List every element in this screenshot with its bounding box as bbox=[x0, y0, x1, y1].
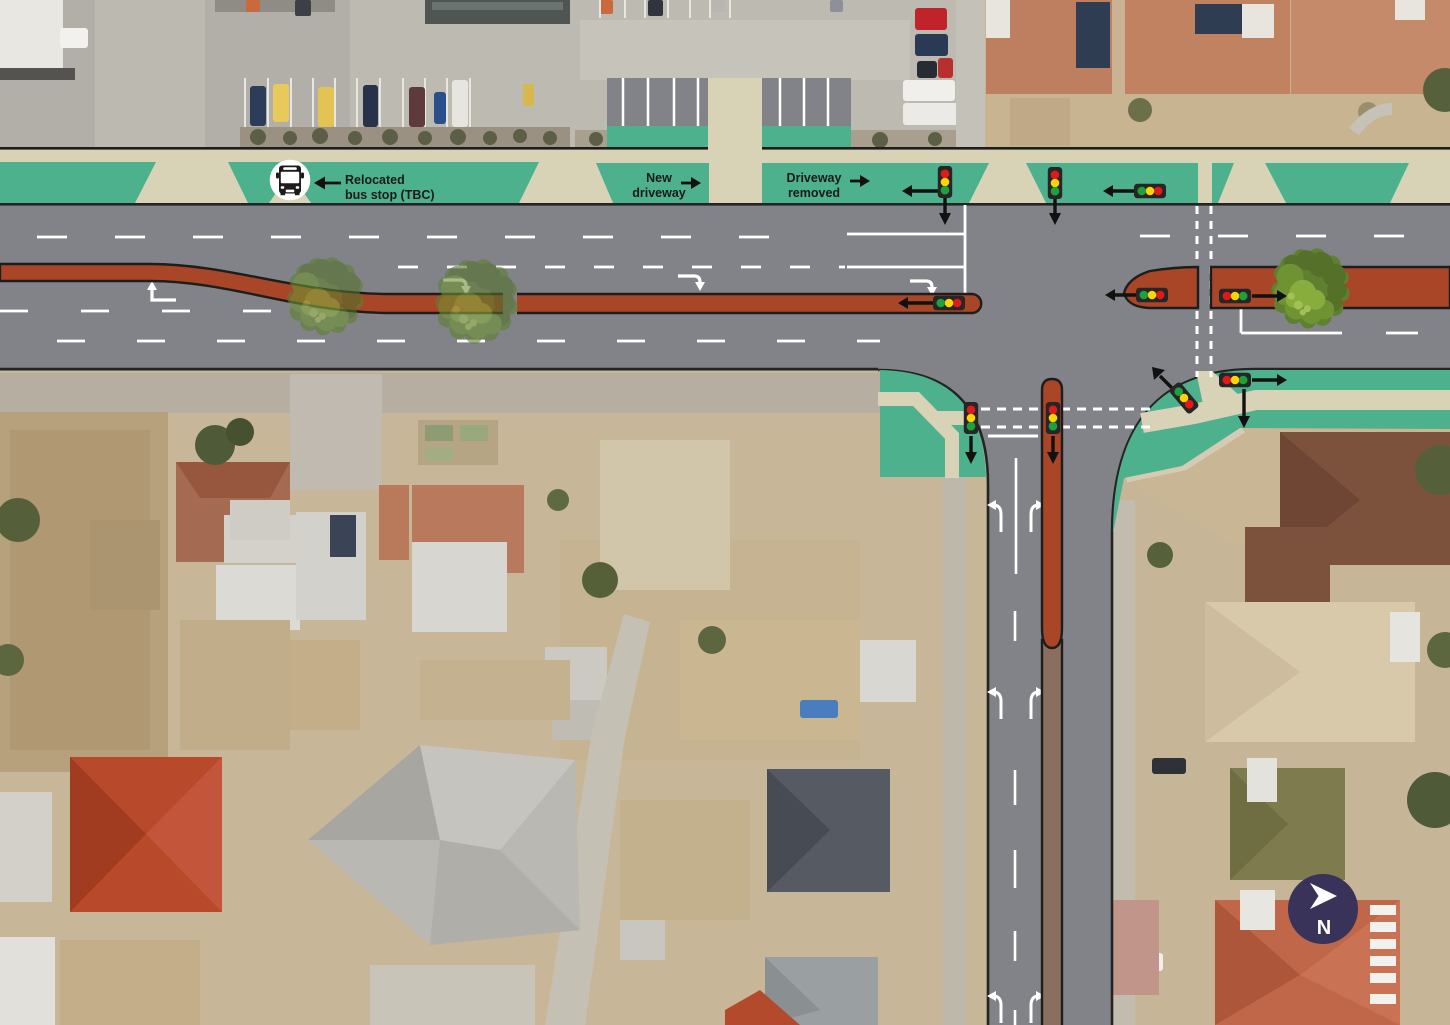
svg-text:driveway: driveway bbox=[632, 186, 686, 200]
svg-text:bus stop (TBC): bus stop (TBC) bbox=[345, 188, 435, 202]
svg-text:Driveway: Driveway bbox=[787, 171, 842, 185]
svg-text:removed: removed bbox=[788, 186, 840, 200]
svg-text:Relocated: Relocated bbox=[345, 173, 405, 187]
svg-text:N: N bbox=[1317, 917, 1331, 939]
svg-text:New: New bbox=[646, 171, 672, 185]
